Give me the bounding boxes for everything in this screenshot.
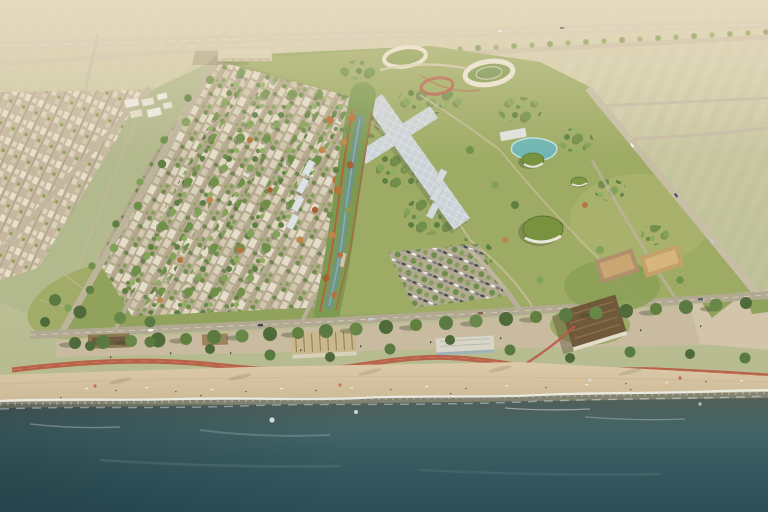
ocean — [0, 390, 768, 512]
aerial-scene — [0, 0, 768, 512]
masterplan-render — [0, 0, 768, 512]
haze-overlay — [0, 0, 768, 160]
